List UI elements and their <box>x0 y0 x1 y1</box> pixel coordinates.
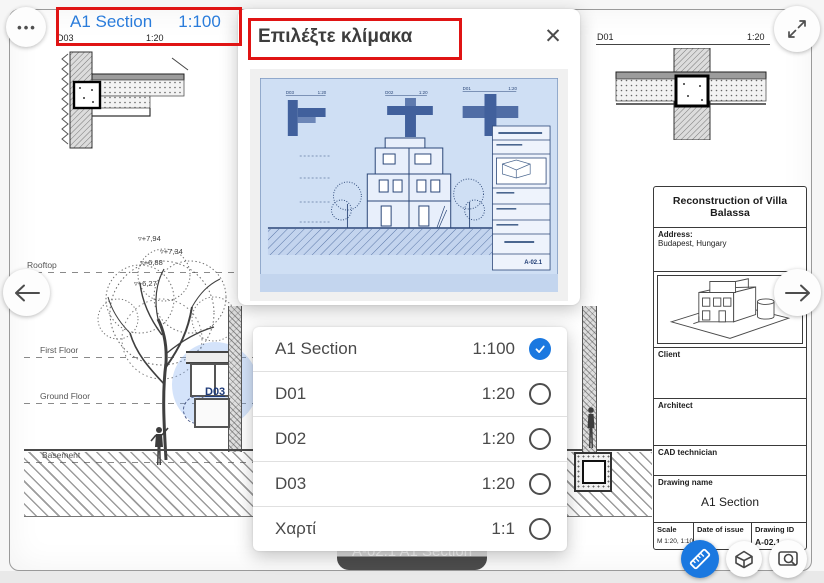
measure-button[interactable] <box>681 540 719 578</box>
option-label: Χαρτί <box>275 519 491 539</box>
detail-left-underline <box>56 45 168 46</box>
floor-label-rooftop: Rooftop <box>27 260 57 270</box>
detail-left-id: D03 <box>57 33 74 43</box>
close-icon: ✕ <box>544 24 562 49</box>
floor-label-ground: Ground Floor <box>40 391 90 401</box>
option-scale: 1:20 <box>482 384 515 404</box>
option-label: A1 Section <box>275 339 472 359</box>
radio-unselected[interactable] <box>529 428 551 450</box>
detail-left-drawing <box>58 50 190 152</box>
title-block-drawing-name: Drawing name A1 Section <box>654 476 806 523</box>
scale-selector-name: A1 Section <box>70 12 152 32</box>
detail-right-drawing <box>614 48 768 140</box>
more-icon: ••• <box>15 20 37 35</box>
scale-option-row[interactable]: D01 1:20 <box>253 372 567 417</box>
sheet-preview-frame: D031:20 D021:20 D011:20 <box>250 69 568 301</box>
arrow-left-icon <box>12 282 42 304</box>
zoom-frame-icon <box>776 547 800 571</box>
sheet-preview-image: D031:20 D021:20 D011:20 <box>260 78 558 292</box>
svg-text:1:20: 1:20 <box>419 90 428 95</box>
svg-text:1:20: 1:20 <box>318 90 327 95</box>
section-window-small <box>194 398 230 428</box>
3d-view-button[interactable] <box>726 541 762 577</box>
title-block-client: Client <box>654 348 806 399</box>
scale-dialog: Επιλέξτε κλίμακα ✕ D031:20 D021:20 <box>238 9 580 305</box>
3d-box-icon <box>732 547 756 571</box>
detail-right-scale: 1:20 <box>747 32 765 42</box>
detail-marker-label[interactable]: D03 <box>205 386 225 398</box>
dialog-title: Επιλέξτε κλίμακα <box>258 26 412 48</box>
scale-option-row[interactable]: Χαρτί 1:1 <box>253 507 567 551</box>
title-block: Reconstruction of Villa Balassa Address:… <box>653 186 807 550</box>
option-scale: 1:100 <box>472 339 515 359</box>
option-scale: 1:20 <box>482 429 515 449</box>
svg-text:D02: D02 <box>385 90 394 95</box>
radio-selected[interactable] <box>529 338 551 360</box>
scale-selector-value: 1:100 <box>178 12 221 32</box>
title-block-architect: Architect <box>654 399 806 446</box>
person-figure-right <box>583 406 599 450</box>
title-block-project: Reconstruction of Villa Balassa <box>654 187 806 228</box>
radio-unselected[interactable] <box>529 473 551 495</box>
radio-unselected[interactable] <box>529 383 551 405</box>
scale-option-row[interactable]: A1 Section 1:100 <box>253 327 567 372</box>
zoom-extents-button[interactable] <box>769 540 807 578</box>
detail-right-underline <box>596 44 770 45</box>
floor-label-first: First Floor <box>40 345 78 355</box>
modal-gap-wash <box>250 306 570 326</box>
check-icon <box>533 342 547 356</box>
next-sheet-button[interactable] <box>774 269 821 316</box>
svg-text:1:20: 1:20 <box>508 86 517 91</box>
detail-right-id: D01 <box>597 32 614 42</box>
svg-text:A-02.1: A-02.1 <box>524 260 543 266</box>
title-block-address: Address: Budapest, Hungary <box>654 228 806 271</box>
svg-text:D01: D01 <box>463 86 472 91</box>
arrow-right-icon <box>783 282 813 304</box>
fullscreen-button[interactable] <box>774 6 820 52</box>
scale-option-row[interactable]: D03 1:20 <box>253 462 567 507</box>
option-scale: 1:1 <box>491 519 515 539</box>
scale-option-row[interactable]: D02 1:20 <box>253 417 567 462</box>
close-button[interactable]: ✕ <box>538 21 568 51</box>
detail-left-scale: 1:20 <box>146 33 164 43</box>
scale-option-list: A1 Section 1:100 D01 1:20 D02 1:20 D03 1… <box>253 327 567 551</box>
option-label: D01 <box>275 384 482 404</box>
radio-unselected[interactable] <box>529 518 551 540</box>
option-label: D03 <box>275 474 482 494</box>
more-menu-button[interactable]: ••• <box>6 7 46 47</box>
section-wall <box>228 306 242 452</box>
title-block-cad: CAD technician <box>654 446 806 476</box>
previous-sheet-button[interactable] <box>3 269 50 316</box>
ruler-icon <box>687 546 713 572</box>
svg-text:D03: D03 <box>286 90 295 95</box>
scale-selector-button[interactable]: A1 Section 1:100 <box>70 12 221 32</box>
section-footing <box>574 452 612 492</box>
expand-icon <box>786 18 808 40</box>
option-label: D02 <box>275 429 482 449</box>
option-scale: 1:20 <box>482 474 515 494</box>
app-window: D03 1:20 D01 1:20 ▿+7,94 ▿+7,34 ▿+6,88 <box>0 0 824 583</box>
